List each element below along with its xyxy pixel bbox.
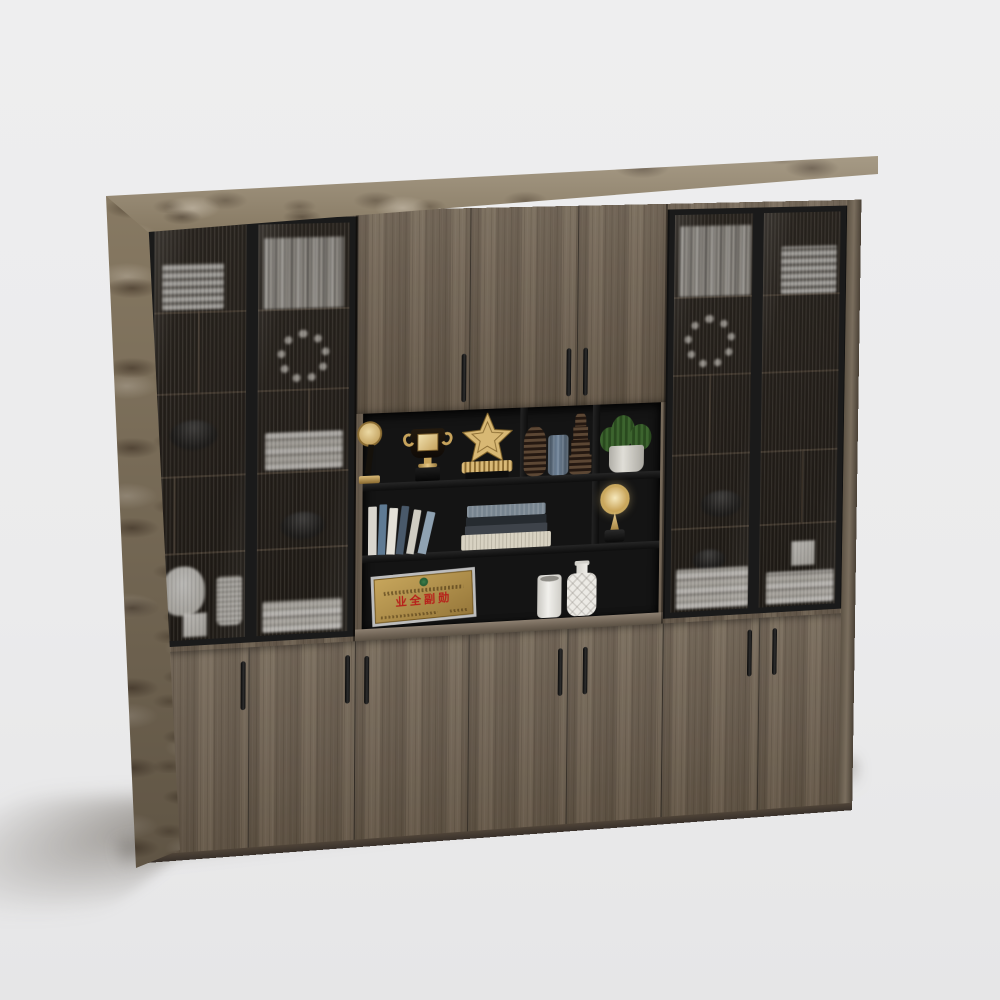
glass-door <box>251 216 356 642</box>
bottle-body <box>567 572 597 616</box>
star-award <box>462 412 517 480</box>
upper-door <box>356 208 470 414</box>
award-plaque: 业全副勋 <box>371 567 477 627</box>
scene: 业全副勋 <box>0 0 1000 1000</box>
trophy-stem <box>365 444 374 474</box>
fluted-glass-overlay <box>256 223 349 637</box>
cabinet-front: 业全副勋 <box>145 200 862 863</box>
right-glass-cabinet <box>663 206 848 619</box>
door-handle <box>583 348 588 396</box>
fluted-glass-overlay <box>670 213 753 612</box>
upper-door <box>469 206 579 410</box>
lower-door <box>661 618 760 817</box>
fluted-glass-overlay <box>153 225 246 642</box>
award-base <box>604 529 624 542</box>
lower-door <box>467 629 567 831</box>
book-spine <box>418 511 436 554</box>
book-spine <box>368 506 377 555</box>
door-handle <box>583 647 588 695</box>
trophy-base <box>359 475 380 484</box>
lower-door <box>248 641 355 847</box>
glass-door <box>665 208 759 619</box>
fluted-glass-overlay <box>759 211 841 607</box>
bottom-cabinet-row <box>145 612 855 855</box>
door-handle <box>241 661 246 710</box>
door-handle <box>364 656 369 705</box>
blue-glass-vase <box>548 435 569 476</box>
vase-opening <box>540 575 559 582</box>
leaning-books <box>368 498 445 556</box>
book-stack <box>461 502 551 550</box>
cup-face <box>417 433 438 451</box>
glass-door <box>753 206 846 614</box>
lower-door <box>566 623 663 824</box>
succulent-plant <box>598 414 657 474</box>
lower-door <box>354 635 469 840</box>
door-handle <box>558 648 563 696</box>
vase-tier <box>569 455 591 475</box>
white-cylinder-vase <box>537 574 562 618</box>
star-icon <box>462 412 513 464</box>
trophy-cup <box>403 428 453 482</box>
plaque-emblem-icon <box>419 577 428 586</box>
medal-disc <box>357 421 382 447</box>
door-handle <box>345 655 350 704</box>
door-handle <box>461 354 466 403</box>
cabinet-3d-wrapper: 业全副勋 <box>146 214 906 874</box>
medal-trophy <box>355 421 382 484</box>
plaque-footer-line <box>450 608 468 613</box>
plant-pot <box>609 445 644 473</box>
open-shelving: 业全副勋 <box>362 402 661 629</box>
door-handle <box>566 348 571 396</box>
left-glass-cabinet <box>145 216 357 648</box>
door-handle <box>772 628 777 675</box>
award-ring <box>600 483 630 515</box>
upper-door <box>576 204 668 406</box>
door-handle <box>747 630 752 677</box>
round-award <box>599 483 631 543</box>
bronze-tiered-vase <box>569 413 592 475</box>
white-bottle-vase <box>567 560 597 617</box>
cup-base <box>415 467 440 482</box>
bronze-ribbed-vase <box>524 426 547 477</box>
plaque-footer-line <box>381 611 438 620</box>
